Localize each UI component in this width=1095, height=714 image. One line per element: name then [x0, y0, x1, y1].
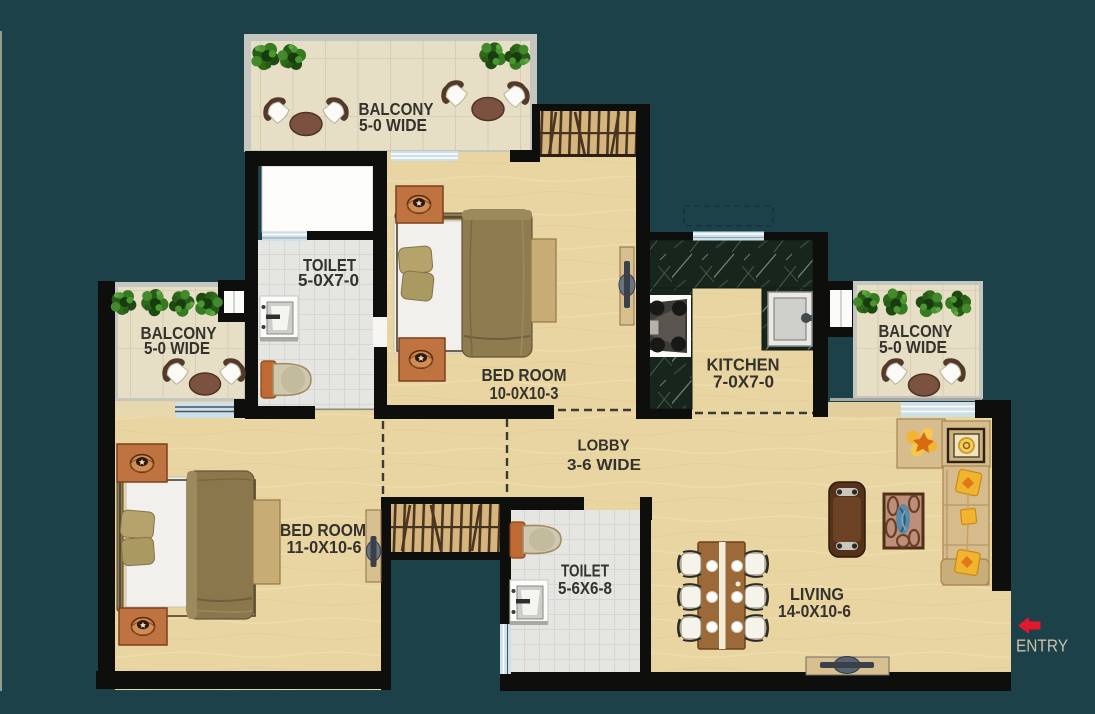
svg-text:5-6X6-8: 5-6X6-8 — [558, 578, 612, 598]
svg-text:14-0X10-6: 14-0X10-6 — [778, 601, 851, 621]
svg-text:10-0X10-3: 10-0X10-3 — [490, 383, 559, 403]
svg-text:11-0X10-6: 11-0X10-6 — [287, 537, 362, 557]
svg-text:5-0 WIDE: 5-0 WIDE — [144, 338, 210, 358]
svg-text:ENTRY: ENTRY — [1016, 636, 1068, 656]
svg-text:7-0X7-0: 7-0X7-0 — [713, 372, 774, 392]
svg-text:LOBBY: LOBBY — [578, 438, 630, 455]
svg-text:5-0 WIDE: 5-0 WIDE — [359, 115, 427, 135]
svg-text:3-6 WIDE: 3-6 WIDE — [567, 457, 641, 474]
svg-text:5-0 WIDE: 5-0 WIDE — [879, 337, 947, 357]
svg-text:5-0X7-0: 5-0X7-0 — [298, 270, 359, 290]
svg-text:BED ROOM: BED ROOM — [482, 365, 567, 385]
